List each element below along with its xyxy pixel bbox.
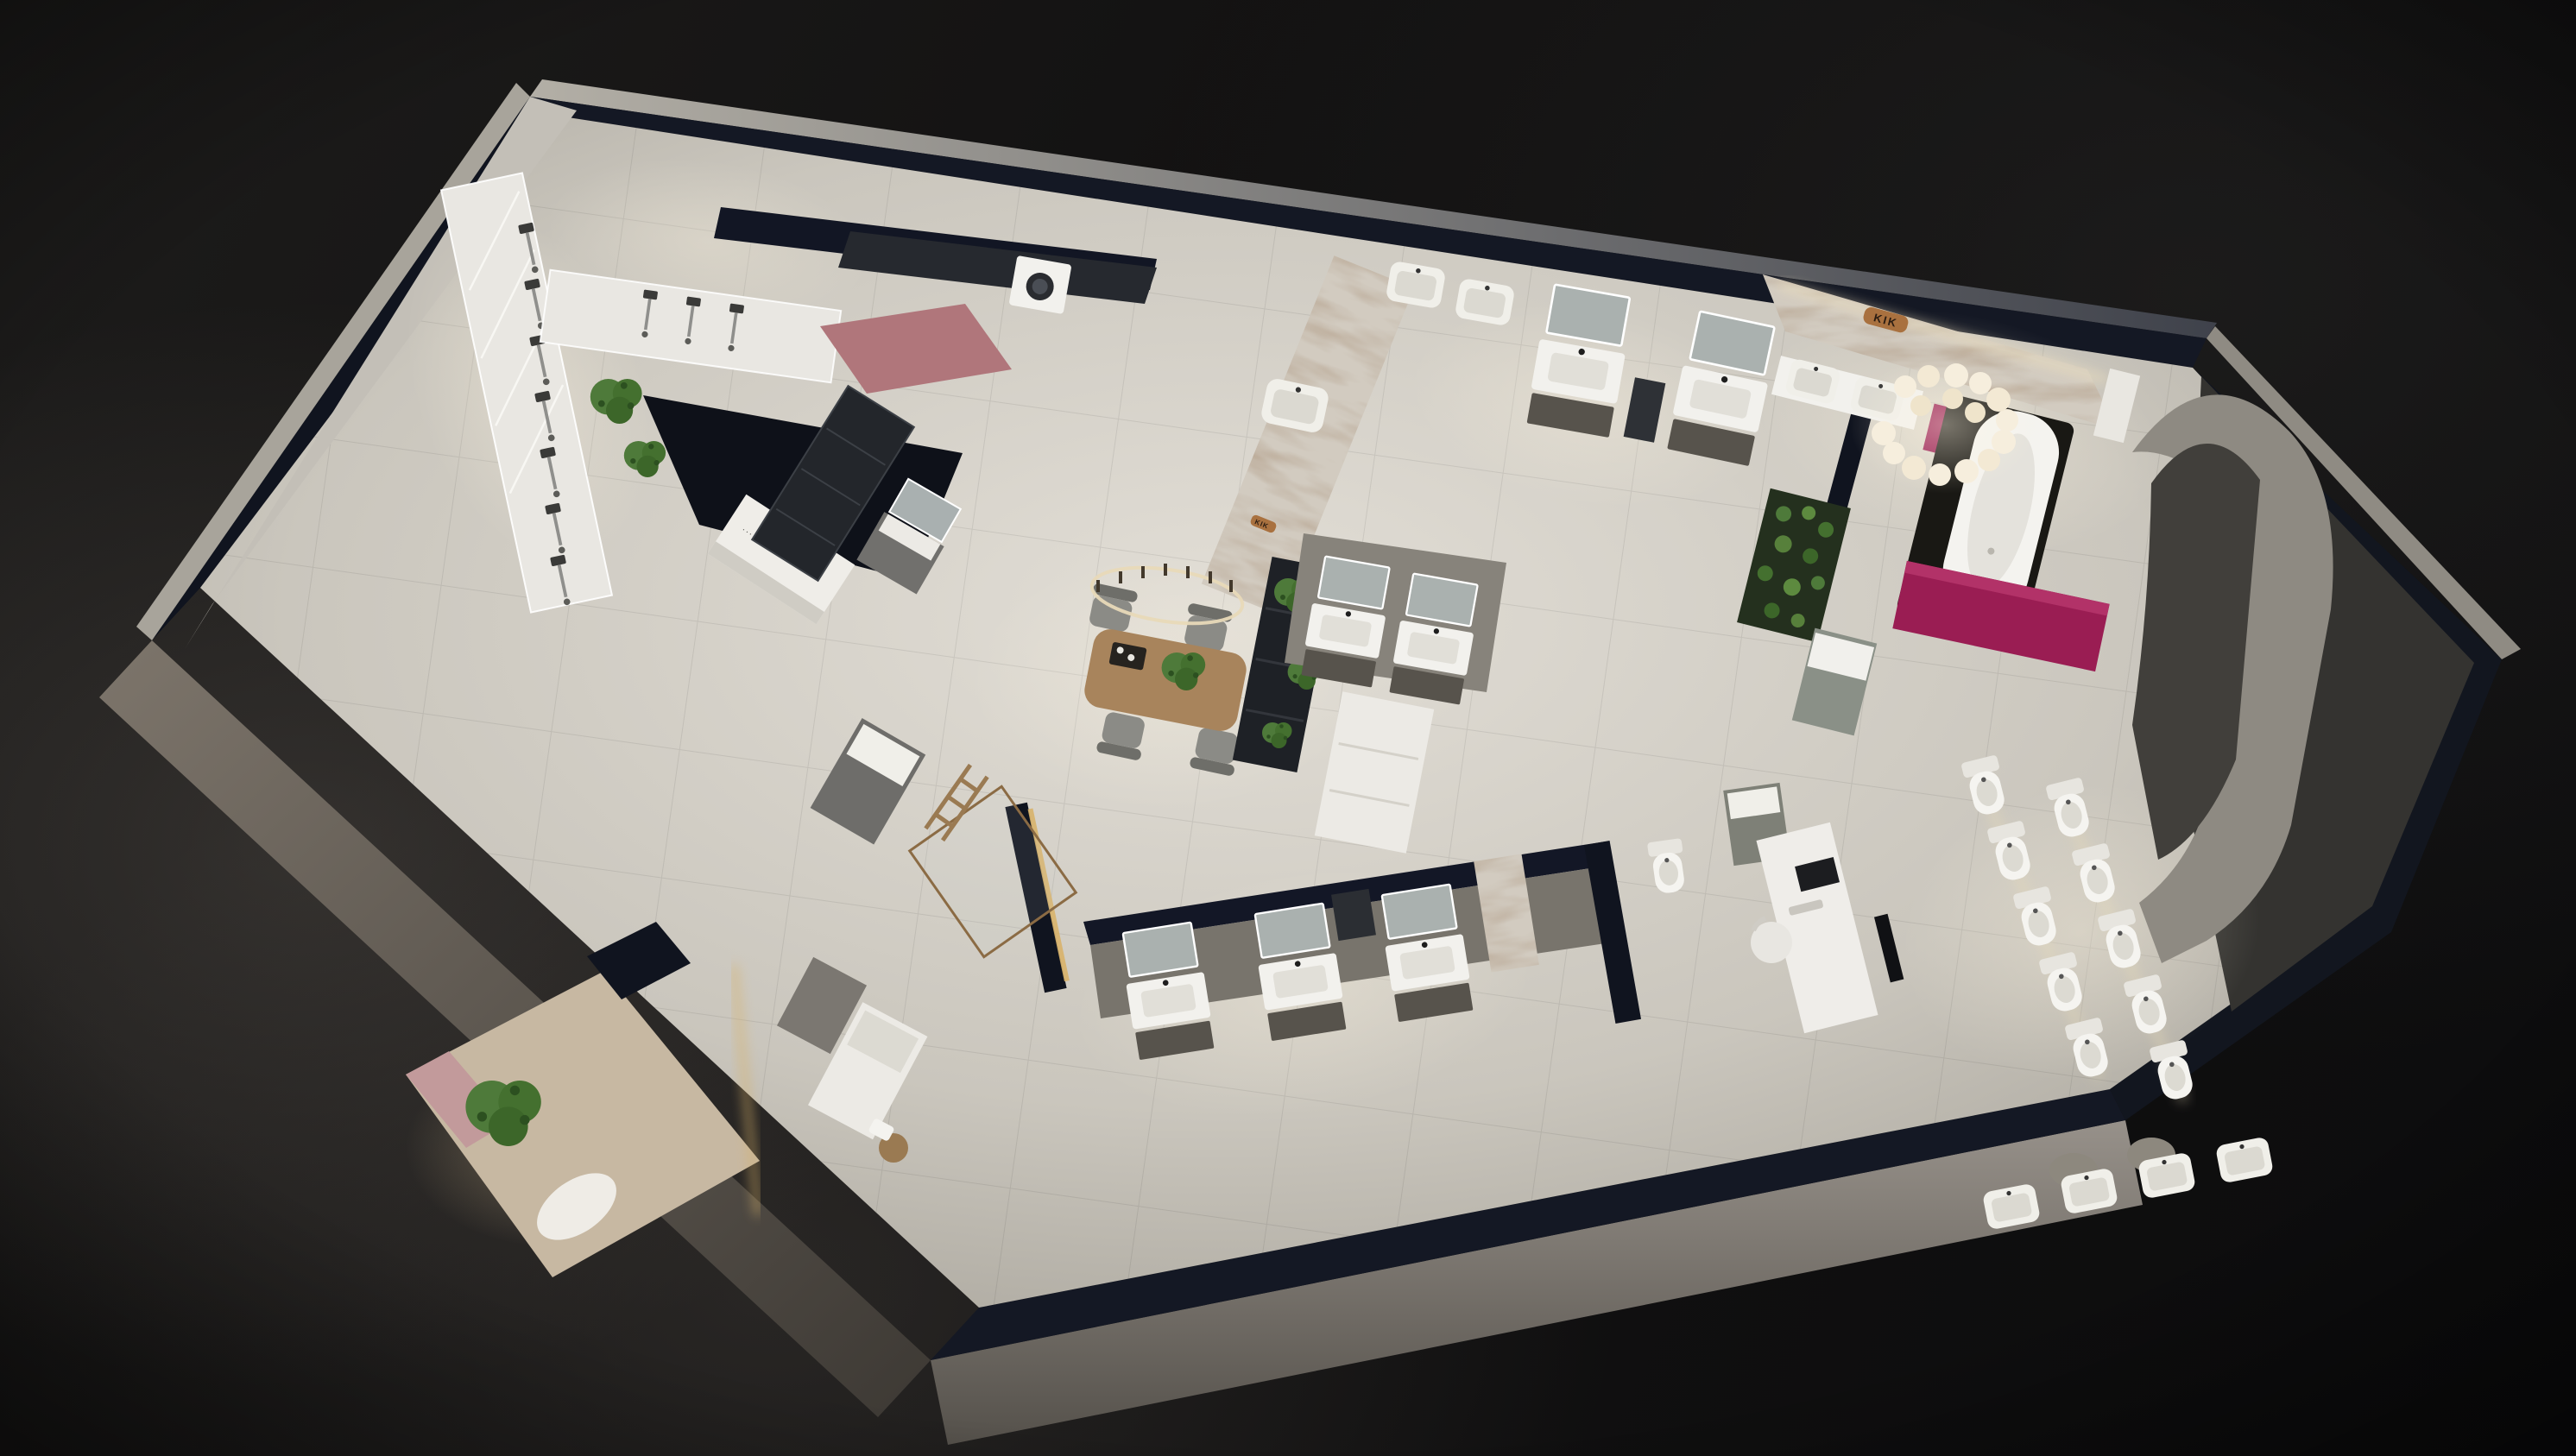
showroom-render: ····· ····· KIK — [0, 0, 2576, 1456]
vignette-overlay — [0, 0, 2576, 1456]
render-canvas: ····· ····· KIK — [0, 0, 2576, 1456]
